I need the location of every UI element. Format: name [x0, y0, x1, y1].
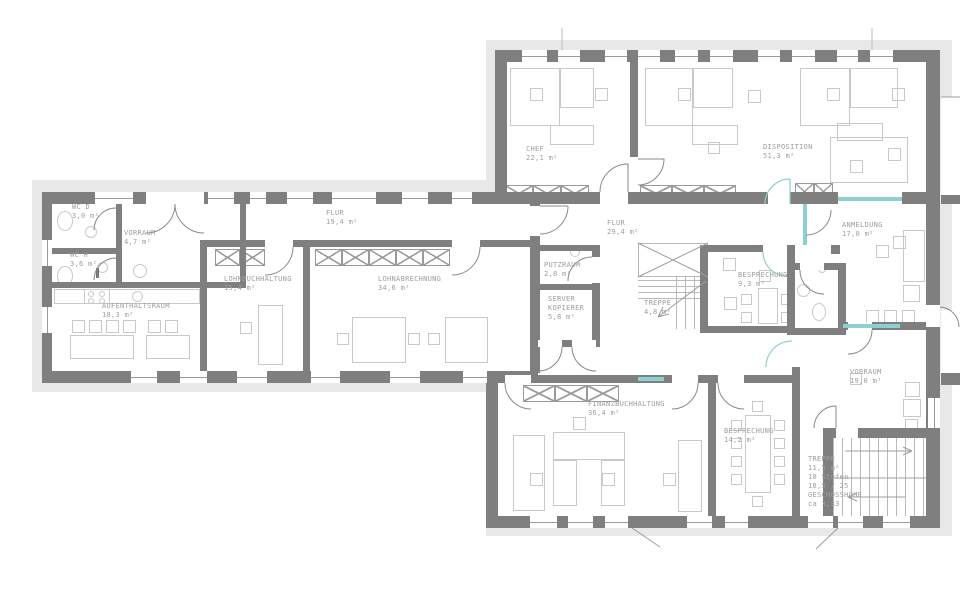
wall	[700, 245, 708, 333]
wall	[52, 282, 246, 288]
cabinet-unit	[369, 249, 396, 266]
door-opening	[836, 428, 858, 438]
toilet-fixture	[812, 303, 826, 321]
cabinet-unit	[342, 249, 369, 266]
furniture	[165, 320, 178, 333]
furniture	[893, 236, 906, 249]
window	[687, 516, 712, 528]
room-interior	[941, 97, 960, 197]
door-opening	[718, 375, 744, 383]
wall	[240, 202, 246, 282]
furniture	[693, 68, 733, 108]
wall	[790, 192, 838, 204]
furniture	[903, 285, 920, 302]
furniture	[708, 142, 720, 154]
furniture	[774, 456, 785, 467]
furniture	[741, 294, 752, 305]
window	[605, 50, 627, 62]
window	[522, 50, 547, 62]
furniture	[553, 432, 625, 460]
glass-partition	[638, 377, 664, 381]
door-opening	[926, 305, 940, 327]
window	[808, 516, 833, 528]
furniture	[550, 125, 594, 145]
cabinet-unit	[315, 249, 342, 266]
furniture	[573, 417, 586, 430]
window	[180, 371, 207, 383]
furniture	[89, 320, 102, 333]
window	[605, 516, 628, 528]
door-opening	[452, 240, 480, 247]
room-label-aufenthaltsraum: AUFENTHALTSRAUM18,3 m²	[102, 302, 170, 320]
window	[675, 50, 698, 62]
toilet-fixture	[57, 211, 73, 231]
furniture	[123, 320, 136, 333]
room-label-treppe-haupt: TREPPE11,5 m²18 Stufen18,5 / 25GESCHOSSH…	[808, 455, 862, 510]
cabinet-unit	[555, 385, 587, 402]
door-opening	[672, 375, 698, 383]
room-label-flur-rechts: FLUR29,4 m²	[607, 219, 639, 237]
wall	[495, 62, 507, 204]
furniture	[748, 90, 761, 103]
room-label-vorraum-gross: VORRAUM19,0 m²	[850, 368, 882, 386]
window	[568, 516, 593, 528]
wall	[630, 62, 638, 157]
furniture	[678, 88, 691, 101]
fixture-circle	[797, 284, 810, 297]
window	[208, 192, 234, 204]
wall	[787, 328, 846, 335]
door-opening	[600, 192, 628, 204]
furniture	[595, 88, 608, 101]
room-label-finanzbuchhaltung: FINANZBUCHHALTUNG36,4 m²	[588, 400, 665, 418]
wall	[708, 375, 716, 516]
fixture-mark	[96, 268, 99, 278]
window	[837, 50, 858, 62]
wall	[700, 245, 763, 252]
furniture	[258, 305, 283, 365]
fixture-circle	[88, 291, 94, 297]
furniture	[905, 382, 920, 397]
furniture	[560, 68, 594, 108]
glass-partition	[843, 324, 900, 328]
window	[792, 50, 815, 62]
room-label-putzraum: PUTZRAUM2,8 m²	[544, 261, 580, 279]
window	[237, 371, 267, 383]
furniture	[724, 297, 737, 310]
furniture	[337, 333, 349, 345]
furniture	[774, 438, 785, 449]
furniture	[731, 474, 742, 485]
window	[710, 50, 733, 62]
room-label-treppe-mitte: TREPPE4,8 m²	[644, 299, 671, 317]
wall	[540, 284, 596, 290]
furniture	[513, 435, 545, 511]
window	[390, 371, 420, 383]
furniture	[758, 288, 778, 324]
cabinet-unit	[423, 249, 450, 266]
window	[250, 192, 266, 204]
furniture	[663, 473, 676, 486]
furniture	[888, 148, 901, 161]
window	[402, 192, 428, 204]
furniture	[106, 320, 119, 333]
window	[758, 50, 780, 62]
fixture-circle	[133, 264, 147, 278]
furniture	[146, 335, 190, 359]
furniture	[774, 420, 785, 431]
room-label-wc-d: WC D3,0 m²	[72, 203, 99, 221]
furniture	[903, 230, 925, 282]
furniture	[352, 317, 406, 363]
cabinet-unit	[215, 249, 240, 266]
wall	[540, 245, 596, 251]
window	[638, 50, 660, 62]
wall	[42, 192, 52, 383]
door-opening	[505, 375, 531, 383]
furniture	[530, 88, 543, 101]
door-opening	[146, 192, 204, 204]
window	[287, 192, 313, 204]
wall	[635, 192, 768, 204]
wall	[116, 202, 122, 282]
furniture	[445, 317, 488, 363]
room-label-lohnabrechnung: LOHNABRECHNUNG34,6 m²	[378, 275, 441, 293]
furniture	[70, 335, 134, 359]
room-interior	[768, 192, 790, 204]
room-label-chef: CHEF22,1 m²	[526, 145, 558, 163]
glass-partition	[803, 204, 807, 245]
furniture	[428, 333, 440, 345]
door-opening	[538, 340, 562, 347]
stair-run	[638, 243, 708, 277]
furniture	[774, 474, 785, 485]
wall	[941, 373, 960, 385]
wall	[200, 240, 207, 383]
door-opening	[265, 240, 293, 247]
room-label-disposition: DISPOSITION51,3 m²	[763, 143, 813, 161]
wall	[486, 375, 498, 516]
window	[95, 192, 133, 204]
wall	[200, 240, 538, 247]
furniture	[553, 460, 577, 506]
door-opening	[572, 340, 596, 347]
furniture	[892, 88, 905, 101]
wall	[926, 62, 940, 516]
furniture	[850, 68, 898, 108]
wall	[700, 326, 795, 333]
furniture	[731, 456, 742, 467]
window	[463, 371, 487, 383]
window	[42, 307, 52, 333]
door-opening	[592, 257, 600, 283]
window	[838, 516, 863, 528]
wall	[831, 245, 840, 254]
door-opening	[530, 206, 540, 236]
wall	[303, 247, 310, 383]
wall	[787, 245, 795, 335]
window	[311, 371, 340, 383]
furniture	[800, 68, 850, 126]
furniture	[752, 401, 763, 412]
glass-partition	[838, 197, 902, 201]
furniture	[72, 320, 85, 333]
window	[530, 516, 557, 528]
furniture	[741, 312, 752, 323]
furniture	[408, 333, 420, 345]
room-label-lohnbuchhaltung: LOHNBUCHHALTUNG15,4 m²	[224, 275, 292, 293]
window	[883, 516, 910, 528]
window	[725, 516, 748, 528]
cabinet-unit	[396, 249, 423, 266]
window	[42, 240, 52, 266]
room-label-anmeldung: ANMELDUNG17,0 m²	[842, 221, 883, 239]
fixture-circle	[99, 291, 105, 297]
wall	[792, 367, 800, 516]
furniture	[240, 322, 252, 334]
fixture-circle	[88, 298, 94, 304]
window	[131, 371, 157, 383]
room-label-besprechung-klein: BESPRECHUNG9,3 m²	[738, 271, 788, 289]
room-label-flur-links: FLUR19,4 m²	[326, 209, 358, 227]
window	[332, 192, 376, 204]
window	[870, 50, 893, 62]
room-interior	[941, 310, 960, 375]
furniture	[903, 399, 921, 417]
fixture-circle	[132, 291, 143, 302]
furniture	[876, 245, 889, 258]
wall	[941, 195, 960, 204]
room-label-besprechung-gross: BESPRECHUNG14,2 m²	[724, 427, 774, 445]
furniture	[602, 473, 615, 486]
furniture	[148, 320, 161, 333]
cabinet-unit	[523, 385, 555, 402]
floor-plan: WC D3,0 m² WC H3,6 m² VORRAUM4,7 m² FLUR…	[0, 0, 960, 590]
room-label-server: SERVERKOPIERER5,8 m²	[548, 295, 584, 322]
door-opening	[800, 263, 824, 270]
window	[928, 398, 940, 428]
window	[452, 192, 472, 204]
fixture-circle	[85, 226, 97, 238]
furniture	[752, 496, 763, 507]
window	[558, 50, 580, 62]
room-label-vorraum-klein: VORRAUM4,7 m²	[124, 229, 156, 247]
room-label-wc-h: WC H3,6 m²	[70, 251, 97, 269]
furniture	[678, 440, 702, 512]
furniture	[827, 88, 840, 101]
furniture	[850, 160, 863, 173]
furniture	[723, 258, 736, 271]
